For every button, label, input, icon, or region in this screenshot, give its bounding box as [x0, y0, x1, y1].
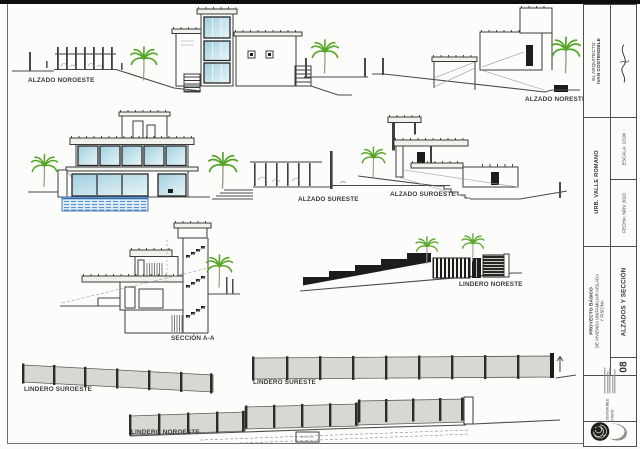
drawing-sheet: .o{fill:none;stroke:#3c3c3c;stroke-width…	[0, 0, 640, 449]
label-lindero-sureste: LINDERO SURESTE	[253, 379, 316, 386]
titleblock-logo-cell	[583, 421, 637, 447]
titleblock-scale-cell: ESCALA: 1/100	[610, 117, 637, 180]
palm-tree-icon	[462, 234, 484, 262]
drawing-alzado-suroeste	[358, 117, 567, 200]
urbanization-name: URB. VALLE ROMANO	[594, 150, 600, 214]
architectural-drawings: .o{fill:none;stroke:#3c3c3c;stroke-width…	[0, 0, 640, 449]
titleblock-sheet-title-cell: ALZADOS Y SECCIÓN	[610, 246, 637, 358]
titleblock-stamp-cell: IVAN COSTENOBLE + QUINTERO	[583, 375, 637, 422]
drawing-alzado-sureste	[28, 112, 450, 212]
titleblock-project-cell: PROYECTO BÁSICO DE VIVIENDA UNIFAMILIAR …	[583, 246, 611, 376]
label-alzado-suroeste: ALZADO SUROESTE	[390, 191, 456, 198]
label-lindero-noreste: LINDERO NORESTE	[459, 281, 523, 288]
drawing-seccion-a-a	[60, 223, 240, 334]
nautilus-logo-icon	[588, 421, 632, 443]
palm-tree-icon	[552, 37, 581, 73]
architect-name: IVAN COSTENOBLE	[597, 38, 602, 84]
palm-tree-icon	[312, 40, 339, 74]
label-alzado-sureste: ALZADO SURESTE	[298, 196, 359, 203]
palm-tree-icon	[209, 153, 238, 189]
label-alzado-noroeste: ALZADO NOROESTE	[28, 77, 95, 84]
scale-value: ESCALA: 1/100	[621, 132, 626, 164]
architect-signature	[615, 29, 633, 89]
label-alzado-noreste: ALZADO NORESTE	[525, 96, 586, 103]
label-seccion-a-a: SECCIÓN A-A	[171, 335, 215, 342]
palm-tree-icon	[207, 255, 233, 287]
drawing-alzado-noreste	[372, 8, 580, 93]
label-lindero-suroeste: LINDERO SUROESTE	[24, 386, 92, 393]
palm-tree-icon	[362, 147, 386, 177]
palm-tree-icon	[32, 154, 58, 186]
titleblock-date-cell: FECHA: NOV 2010	[610, 179, 637, 247]
titleblock-signature-cell	[610, 4, 637, 118]
titleblock-urbanization-cell: URB. VALLE ROMANO	[583, 117, 611, 247]
label-lindero-noroeste: LINDERO NOROESTE	[131, 429, 200, 436]
sheet-number: 08	[618, 361, 629, 372]
project-title-line3: Y PISCINA	[600, 274, 605, 348]
titleblock-architect-cell: EL ARQUITECTO: IVAN COSTENOBLE	[583, 4, 611, 118]
sheet-title: ALZADOS Y SECCIÓN	[620, 268, 627, 337]
drawing-lindero-sureste	[252, 353, 576, 381]
drawing-lindero-noroeste	[129, 397, 560, 444]
stamp-fine-print	[603, 367, 616, 393]
date-value: FECHA: NOV 2010	[621, 193, 626, 233]
